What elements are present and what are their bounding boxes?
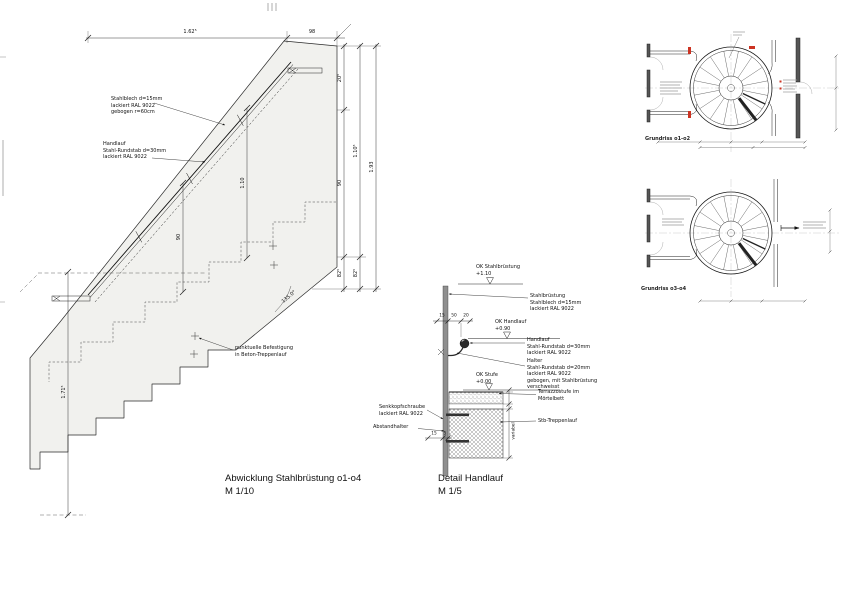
detail-dim-5: 5 (444, 432, 447, 437)
plan-bottom-caption: Grundriss o3-o4 (641, 286, 686, 292)
dim-right-4: 1.10⁵ (353, 144, 359, 157)
red-mark-1 (688, 47, 691, 54)
abwicklung-title: Abwicklung Stahlbrüstung o1-o4 (225, 473, 361, 484)
label-abstandhalter: Abstandhalter (373, 424, 408, 431)
label-halter: Halter Stahl-Rundstab d=20mm lackiert RA… (527, 358, 597, 391)
drawing-linework (0, 0, 842, 595)
screw-2 (446, 440, 469, 443)
level-marker-bruestung (458, 278, 523, 285)
right-note-text (783, 80, 797, 92)
level-2-value: +0.90 (495, 326, 510, 333)
plan-bottom (645, 179, 840, 303)
abwicklung-scale: M 1/10 (225, 486, 254, 497)
detail-dim-3: 20 (463, 314, 468, 319)
section-cut-bar (739, 98, 756, 120)
detail-dim-variabel: variabel (512, 422, 517, 439)
drawing-sheet: Stahlblech d=15mm lackiert RAL 9022 gebo… (0, 0, 842, 595)
right-note-text (803, 222, 826, 228)
dim-right-5: 82⁵ (353, 269, 359, 277)
level-1-value: +1.10 (476, 271, 491, 278)
red-dot-2 (780, 88, 782, 90)
room-note-text (662, 219, 684, 225)
label-schraube: Senkkopfschraube lackiert RAL 9022 (379, 404, 425, 417)
red-dot-1 (780, 81, 782, 83)
dim-left: 1.71⁵ (61, 385, 67, 398)
holder-bracket (448, 348, 463, 356)
mortar-bed (449, 404, 503, 409)
screw-1 (446, 414, 469, 417)
detail-dim-4: 15 (431, 432, 436, 437)
balustrade-surface (30, 41, 337, 469)
terrazzo-step (449, 392, 503, 404)
dimension-top (85, 24, 351, 46)
plan-top-dims (657, 32, 838, 149)
room-note-text (660, 82, 682, 94)
centerlines (645, 34, 840, 152)
red-mark-2 (688, 111, 691, 118)
dim-right-1: 20⁵ (337, 74, 343, 82)
room-left (647, 189, 697, 267)
plan-top-caption: Grundriss o1-o2 (645, 136, 690, 142)
handrail-bar-section (460, 339, 469, 348)
red-mark-3 (749, 46, 755, 49)
dim-inner-2: 90 (176, 234, 182, 240)
label-bruestung: Stahlbrüstung Stahlblech d=15mm lackiert… (530, 293, 581, 313)
dim-right-3: 82⁵ (337, 269, 343, 277)
label-stahlblech: Stahlblech d=15mm lackiert RAL 9022 gebo… (111, 96, 162, 116)
abwicklung-drawing (20, 24, 381, 518)
level-3-value: +0.00 (476, 379, 491, 386)
section-arrow (781, 225, 799, 231)
detail-scale: M 1/5 (438, 486, 462, 497)
dim-right-6: 1.93 (369, 161, 375, 172)
plan-top (645, 32, 840, 152)
label-handlauf: Handlauf Stahl-Rundstab d=30mm lackiert … (103, 141, 166, 161)
detail-dim-1: 15 (439, 314, 444, 319)
label-stb: Stb-Treppenlauf (538, 418, 577, 425)
dim-top-1: 1.62⁵ (183, 29, 196, 35)
detail-title: Detail Handlauf (438, 473, 503, 484)
label-handlauf-det: Handlauf Stahl-Rundstab d=30mm lackiert … (527, 337, 590, 357)
label-terrazzo: Terrazzostufe im Mörtelbett (538, 389, 579, 402)
dim-top-2: 98 (309, 29, 315, 35)
centerlines (645, 179, 840, 297)
room-left (647, 44, 697, 122)
section-cut-line (743, 239, 766, 250)
detail-dim-2: 50 (451, 314, 456, 319)
section-cut-bar (739, 243, 756, 265)
dim-inner-1: 1.10 (240, 177, 246, 188)
label-befestigung: punktuelle Befestigung in Beton-Treppenl… (235, 345, 293, 358)
detail-dim-top (433, 319, 473, 338)
dim-right-2: 90 (337, 180, 343, 186)
section-cut-line (743, 94, 766, 105)
concrete-stair (449, 409, 503, 458)
